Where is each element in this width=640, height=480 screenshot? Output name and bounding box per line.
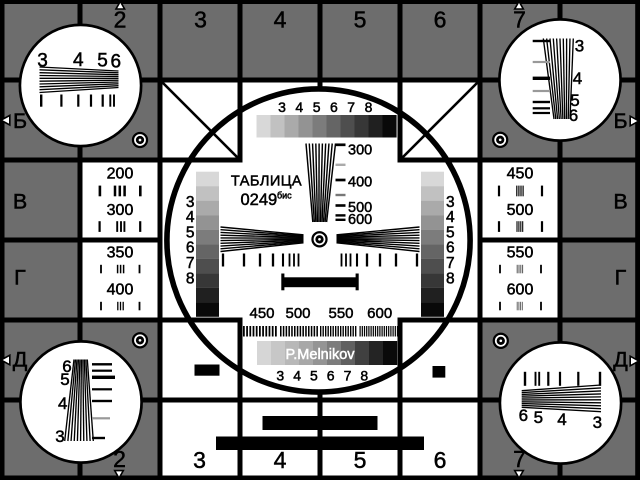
svg-text:Д: Д xyxy=(613,348,628,372)
svg-text:5: 5 xyxy=(313,99,321,115)
svg-text:8: 8 xyxy=(360,368,368,384)
svg-text:В: В xyxy=(613,190,627,214)
svg-text:В: В xyxy=(13,190,27,214)
svg-text:0249: 0249 xyxy=(241,191,278,209)
svg-text:4: 4 xyxy=(274,447,287,473)
svg-text:600: 600 xyxy=(367,305,392,322)
svg-text:P.Melnikov: P.Melnikov xyxy=(285,347,355,363)
svg-text:бис: бис xyxy=(277,191,292,201)
svg-text:4: 4 xyxy=(73,50,84,71)
svg-text:Б: Б xyxy=(613,109,627,133)
svg-text:3: 3 xyxy=(593,413,602,432)
svg-text:7: 7 xyxy=(347,99,355,115)
svg-text:500: 500 xyxy=(507,202,534,219)
svg-text:600: 600 xyxy=(507,282,534,299)
svg-text:8: 8 xyxy=(446,270,455,287)
svg-text:3: 3 xyxy=(278,99,286,115)
svg-text:6: 6 xyxy=(519,406,528,425)
svg-text:200: 200 xyxy=(107,166,134,183)
svg-text:8: 8 xyxy=(365,99,373,115)
svg-text:Г: Г xyxy=(14,266,26,290)
svg-text:6: 6 xyxy=(330,99,338,115)
svg-text:3: 3 xyxy=(55,427,64,446)
svg-text:6: 6 xyxy=(327,368,335,384)
svg-text:6: 6 xyxy=(569,106,578,125)
svg-text:400: 400 xyxy=(348,174,372,190)
svg-text:4: 4 xyxy=(274,7,287,33)
svg-text:7: 7 xyxy=(513,446,526,472)
svg-text:5: 5 xyxy=(354,7,367,33)
svg-text:5: 5 xyxy=(354,447,367,473)
svg-text:5: 5 xyxy=(310,368,318,384)
svg-text:3: 3 xyxy=(37,51,48,72)
svg-text:5: 5 xyxy=(534,408,543,427)
svg-text:5: 5 xyxy=(97,51,108,72)
svg-text:2: 2 xyxy=(114,7,127,33)
svg-text:Б: Б xyxy=(13,109,27,133)
svg-text:600: 600 xyxy=(348,212,372,228)
svg-text:300: 300 xyxy=(107,202,134,219)
svg-text:3: 3 xyxy=(194,7,207,33)
svg-text:6: 6 xyxy=(434,7,447,33)
svg-text:350: 350 xyxy=(107,245,134,262)
svg-text:4: 4 xyxy=(557,410,566,429)
svg-text:4: 4 xyxy=(58,394,67,413)
svg-text:550: 550 xyxy=(507,245,534,262)
svg-text:400: 400 xyxy=(107,282,134,299)
svg-text:4: 4 xyxy=(295,99,303,115)
svg-text:550: 550 xyxy=(328,305,353,322)
svg-text:Г: Г xyxy=(615,266,627,290)
svg-text:7: 7 xyxy=(344,368,352,384)
svg-text:6: 6 xyxy=(434,447,447,473)
svg-text:3: 3 xyxy=(193,447,206,473)
svg-text:500: 500 xyxy=(285,305,310,322)
svg-text:Д: Д xyxy=(13,348,28,372)
svg-text:6: 6 xyxy=(111,51,122,72)
svg-text:8: 8 xyxy=(186,270,195,287)
svg-text:2: 2 xyxy=(113,446,126,472)
svg-text:300: 300 xyxy=(348,142,372,158)
svg-text:7: 7 xyxy=(513,7,526,33)
svg-text:450: 450 xyxy=(507,166,534,183)
svg-text:4: 4 xyxy=(573,69,582,88)
svg-text:4: 4 xyxy=(293,368,301,384)
svg-text:3: 3 xyxy=(276,368,284,384)
svg-text:450: 450 xyxy=(249,305,274,322)
svg-text:3: 3 xyxy=(575,37,584,56)
svg-text:ТАБЛИЦА: ТАБЛИЦА xyxy=(231,174,302,190)
svg-text:5: 5 xyxy=(60,370,69,389)
